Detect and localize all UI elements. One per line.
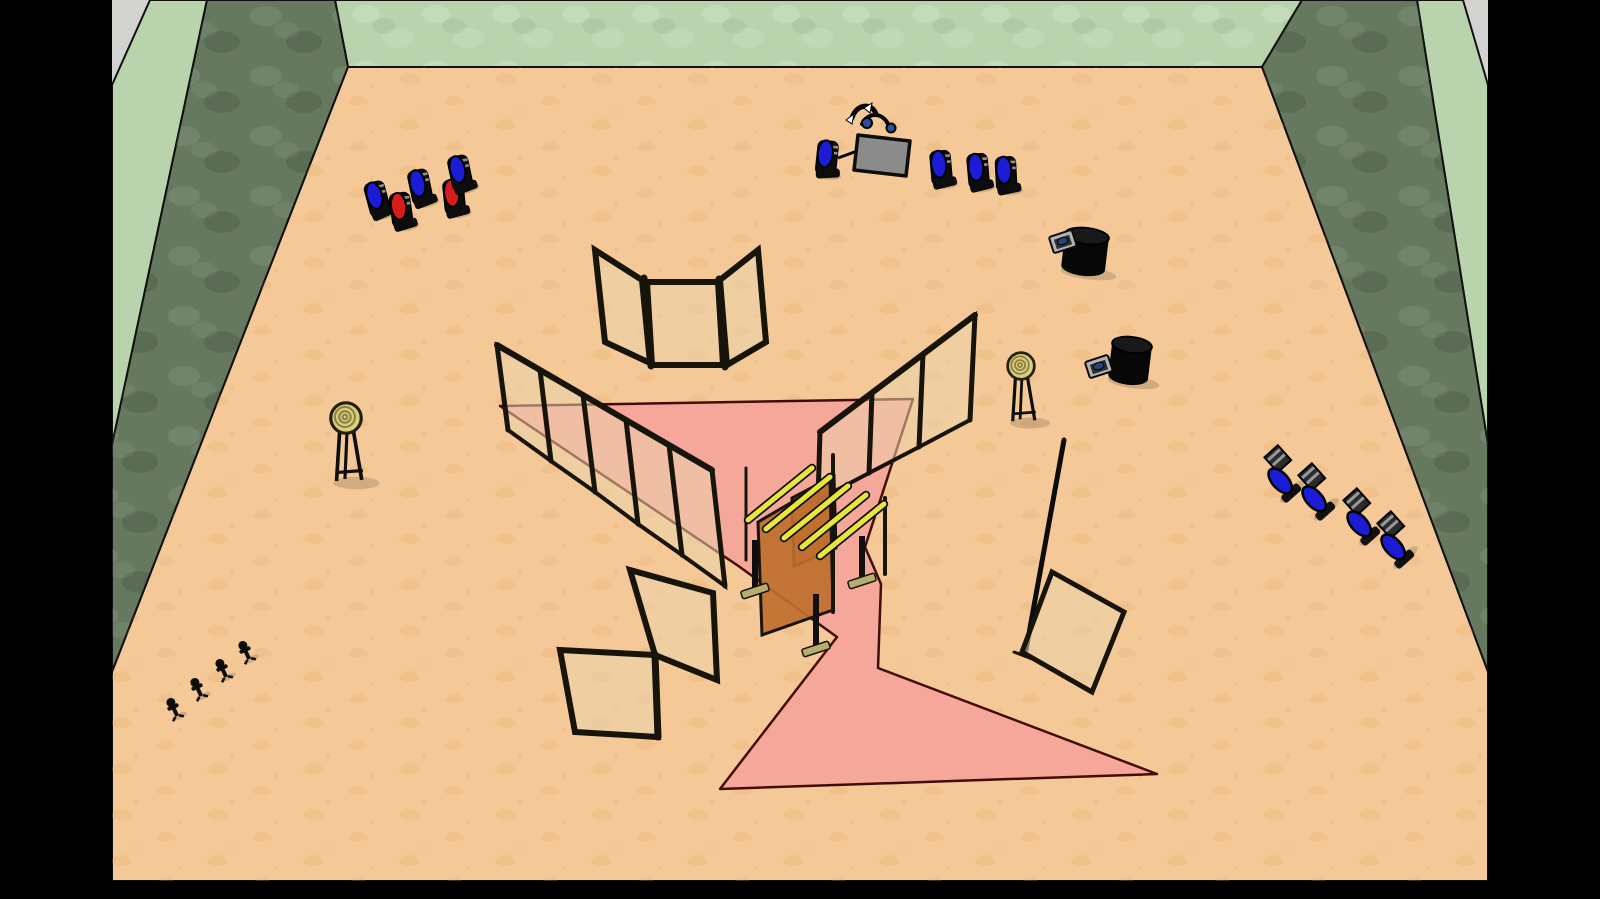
scene-3d-viewport[interactable] bbox=[0, 0, 1600, 899]
figure-base bbox=[816, 168, 840, 178]
letterbox-left bbox=[0, 0, 112, 899]
back-wall-texture bbox=[335, 0, 1302, 67]
fence-post bbox=[869, 393, 872, 473]
stand-crossbar bbox=[1013, 412, 1036, 414]
letterbox-bottom bbox=[112, 881, 1488, 899]
screen-panel bbox=[560, 650, 658, 737]
climber-joint bbox=[887, 124, 896, 133]
climber-joint bbox=[862, 118, 872, 128]
gray-board bbox=[854, 135, 910, 176]
figure-head bbox=[996, 156, 1012, 184]
application-window bbox=[0, 0, 1600, 899]
stand-crossbar bbox=[337, 471, 363, 473]
shadow bbox=[333, 477, 379, 490]
shadow bbox=[1010, 418, 1050, 429]
screen-panel bbox=[647, 282, 723, 365]
screen-hinge bbox=[655, 655, 658, 737]
letterbox-right bbox=[1488, 0, 1600, 899]
